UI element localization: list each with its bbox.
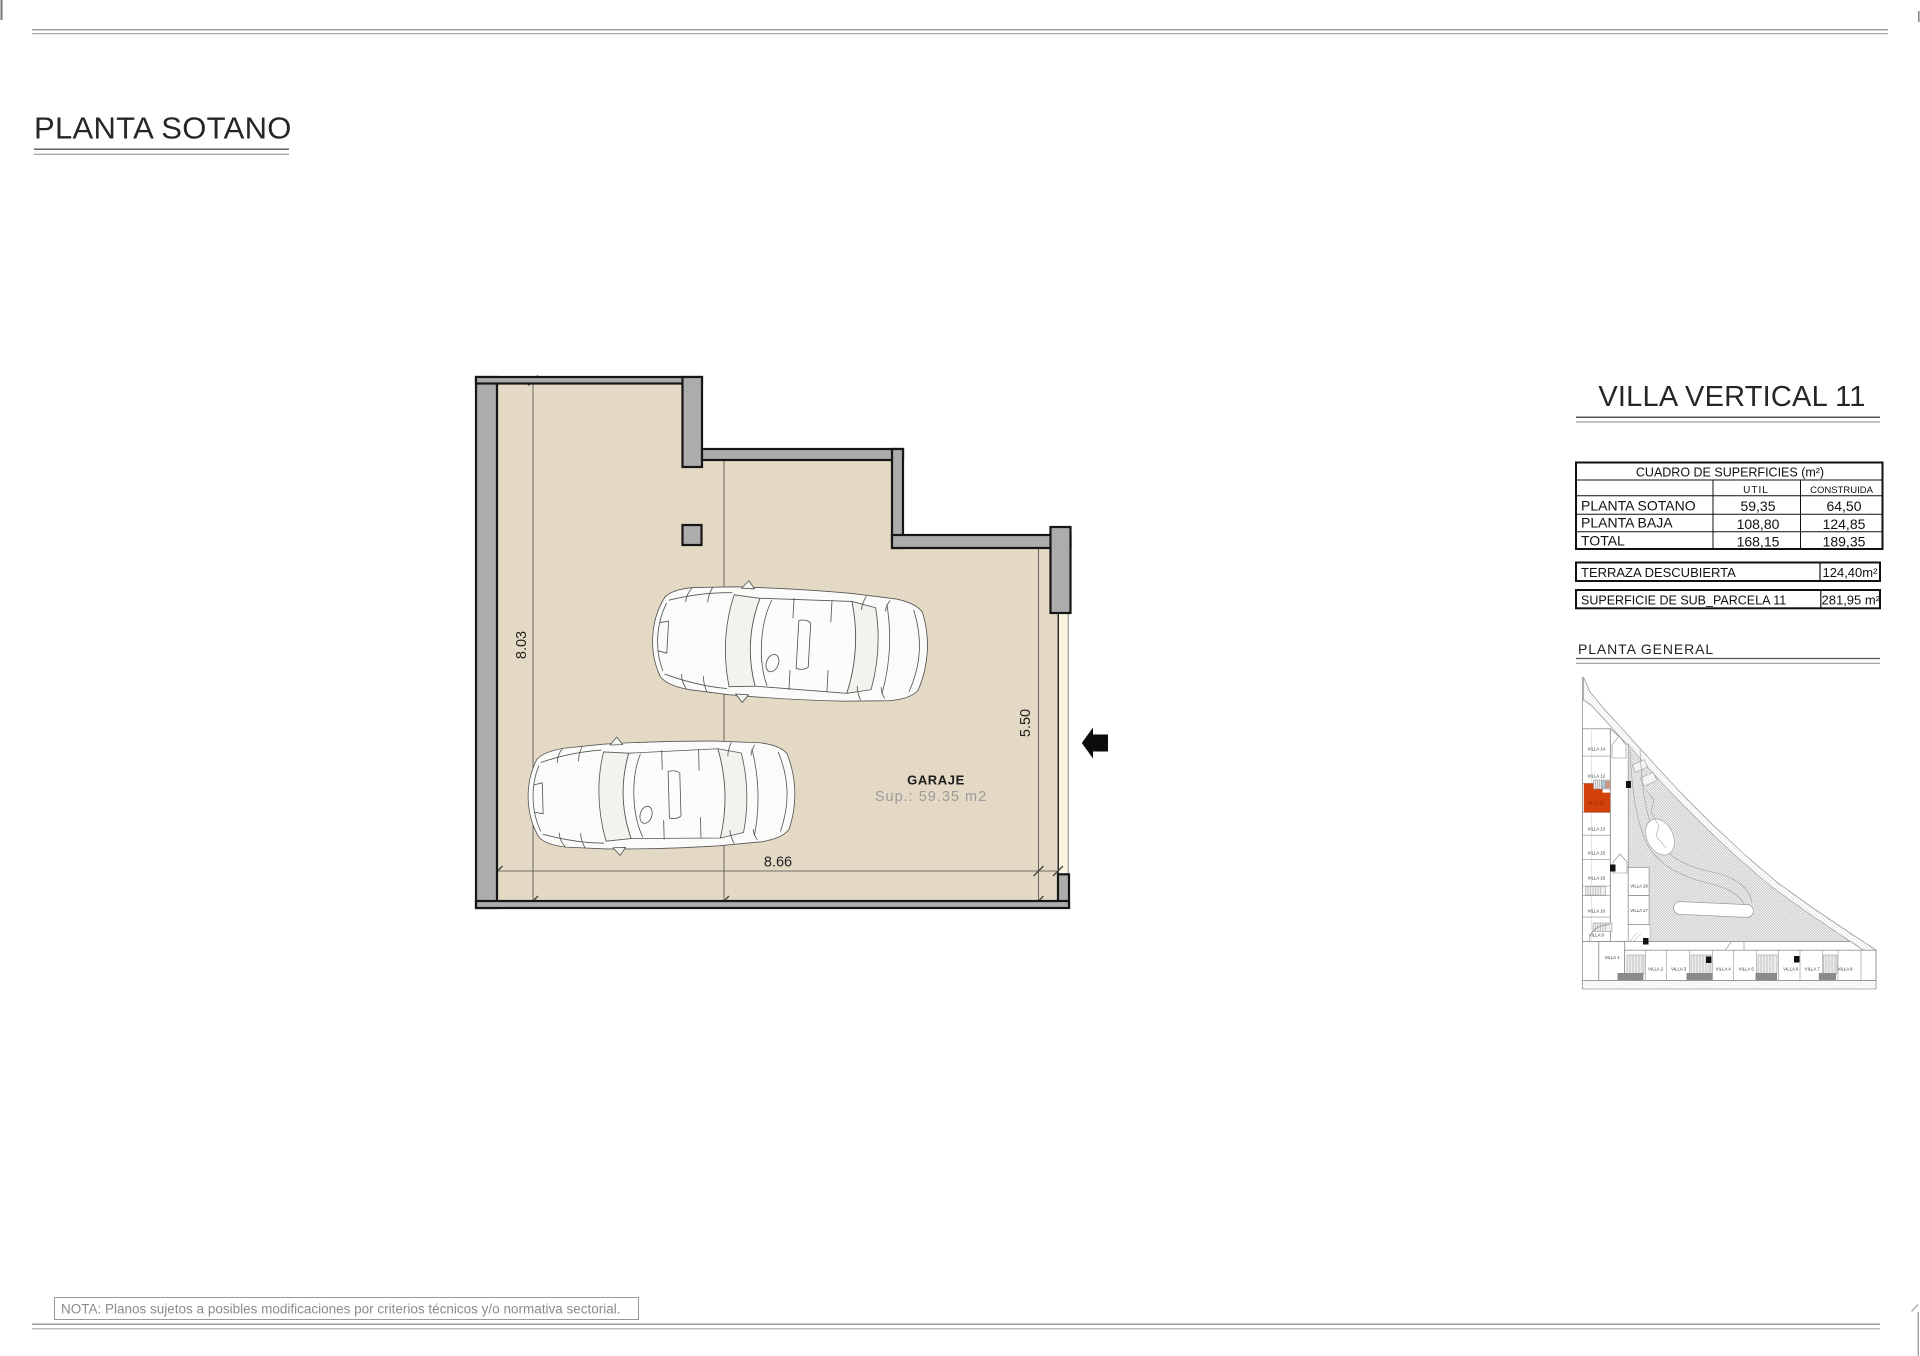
svg-text:VILLA 3: VILLA 3 (1671, 967, 1687, 972)
svg-text:VILLA 11: VILLA 11 (1587, 801, 1605, 806)
svg-text:124,40m²: 124,40m² (1823, 565, 1879, 580)
svg-text:VILLA 15: VILLA 15 (1588, 851, 1606, 856)
svg-text:VILLA 10: VILLA 10 (1588, 909, 1606, 914)
svg-text:NOTA: Planos sujetos a posible: NOTA: Planos sujetos a posibles modifica… (61, 1302, 621, 1317)
svg-text:PLANTA SOTANO: PLANTA SOTANO (34, 111, 292, 146)
svg-text:VILLA 2: VILLA 2 (1648, 967, 1664, 972)
svg-text:VILLA 14: VILLA 14 (1588, 747, 1606, 752)
svg-text:VILLA 4: VILLA 4 (1716, 967, 1732, 972)
svg-text:189,35: 189,35 (1823, 534, 1866, 550)
svg-text:PLANTA GENERAL: PLANTA GENERAL (1578, 641, 1714, 657)
svg-text:VILLA 17: VILLA 17 (1630, 908, 1648, 913)
svg-text:SUPERFICIE DE SUB_PARCELA 11: SUPERFICIE DE SUB_PARCELA 11 (1581, 593, 1786, 607)
svg-text:PLANTA SOTANO: PLANTA SOTANO (1581, 498, 1696, 514)
svg-text:Sup.: 59.35 m2: Sup.: 59.35 m2 (875, 789, 987, 805)
svg-text:281,95 m²: 281,95 m² (1822, 592, 1881, 607)
svg-text:CONSTRUIDA: CONSTRUIDA (1810, 485, 1873, 496)
svg-text:8.66: 8.66 (764, 855, 792, 871)
svg-text:TOTAL: TOTAL (1581, 533, 1625, 549)
svg-text:124,85: 124,85 (1823, 516, 1866, 532)
svg-text:64,50: 64,50 (1826, 498, 1861, 514)
svg-text:VILLA 18: VILLA 18 (1630, 884, 1648, 889)
svg-text:VILLA 6: VILLA 6 (1783, 967, 1799, 972)
svg-text:CUADRO DE SUPERFICIES (m²): CUADRO DE SUPERFICIES (m²) (1636, 466, 1824, 480)
svg-text:VILLA 13: VILLA 13 (1588, 827, 1606, 832)
svg-text:TERRAZA DESCUBIERTA: TERRAZA DESCUBIERTA (1581, 565, 1736, 580)
svg-text:VILLA 1: VILLA 1 (1604, 955, 1620, 960)
svg-text:PLANTA BAJA: PLANTA BAJA (1581, 515, 1673, 531)
svg-text:VILLA 16: VILLA 16 (1588, 876, 1606, 881)
svg-text:108,80: 108,80 (1737, 516, 1780, 532)
svg-text:59,35: 59,35 (1740, 498, 1775, 514)
svg-text:GARAJE: GARAJE (907, 773, 965, 788)
svg-text:5.50: 5.50 (1018, 709, 1034, 737)
svg-text:8.03: 8.03 (514, 631, 530, 659)
svg-text:VILLA 7: VILLA 7 (1805, 967, 1821, 972)
svg-text:VILLA 8: VILLA 8 (1837, 967, 1853, 972)
svg-text:VILLA 5: VILLA 5 (1739, 967, 1755, 972)
svg-text:VILLA 12: VILLA 12 (1588, 774, 1606, 779)
svg-text:VILLA VERTICAL 11: VILLA VERTICAL 11 (1598, 381, 1865, 413)
svg-text:168,15: 168,15 (1737, 534, 1780, 550)
svg-text:UTIL: UTIL (1743, 485, 1769, 496)
